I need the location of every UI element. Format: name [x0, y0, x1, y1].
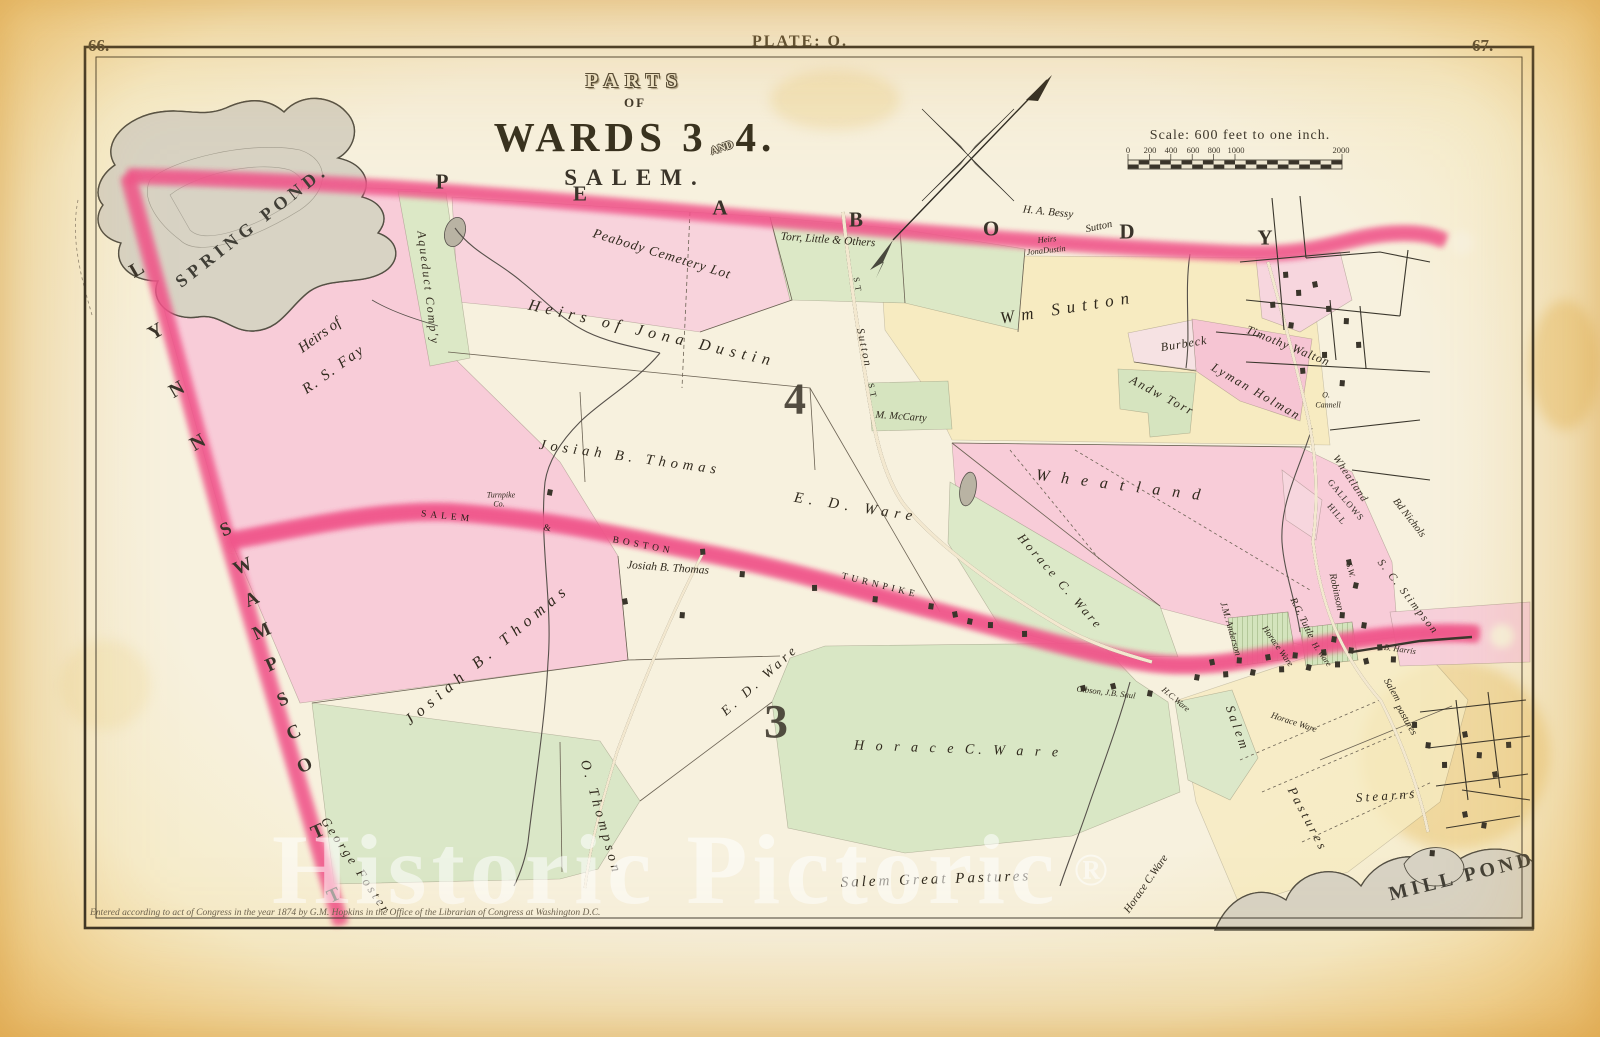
title-and-ornament: AND: [708, 139, 734, 158]
map-label: Gibson, J.B. Saul: [1076, 683, 1136, 700]
map-label: Turnpike: [487, 491, 515, 500]
map-label: H o r a c e C. W a r e: [854, 738, 1063, 761]
map-label: N: [165, 376, 189, 403]
map-label: Horace C. Ware: [1014, 531, 1106, 633]
map-label: Heirs of: [295, 315, 344, 357]
page-number-right: 67.: [1472, 36, 1493, 56]
map-label: D: [1119, 220, 1134, 245]
map-label: O: [294, 753, 316, 779]
map-label: BOSTON: [612, 535, 675, 557]
map-label: 3: [764, 695, 788, 750]
map-label: Lyman Holman: [1208, 360, 1303, 424]
map-label: B. Harris: [1383, 642, 1416, 656]
map-label: Horace Ware: [1270, 710, 1318, 734]
map-label: R.G. Tuttle: [1287, 596, 1316, 640]
scale-caption: Scale: 600 feet to one inch.: [1120, 128, 1360, 144]
map-label: S.W.: [1344, 562, 1357, 579]
map-label: P: [262, 653, 282, 678]
map-label: B: [849, 208, 863, 233]
map-label: 800: [1208, 145, 1221, 155]
map-label: Robinson: [1327, 572, 1346, 611]
map-label: W h e a t l a n d: [1035, 467, 1205, 506]
map-label: Aqueduct Comp'y: [414, 230, 443, 346]
map-label: pastures: [1393, 703, 1419, 738]
map-label: SALEM: [421, 509, 474, 524]
map-label: Salem Great Pastures: [840, 868, 1031, 892]
plate-label: PLATE: O.: [0, 33, 1600, 51]
map-label: O: [983, 217, 999, 242]
title-of: OF: [455, 95, 815, 111]
map-label: Salem: [1381, 677, 1403, 704]
map-label: Torr, Little & Others: [780, 231, 875, 250]
map-label: Horace C.Ware: [1122, 853, 1171, 916]
map-label: S: [274, 688, 293, 712]
map-label: O.: [1322, 391, 1330, 400]
map-label: Y: [1257, 226, 1272, 251]
map-label: Bd Nichols: [1390, 496, 1427, 539]
copyright-line: Entered according to act of Congress in …: [90, 908, 600, 918]
map-label: Burbeck: [1160, 333, 1209, 355]
map-label: Josiah B. Thomas: [538, 437, 722, 479]
map-label: Andw Torr: [1127, 373, 1197, 420]
map-label: H. Ware: [1310, 640, 1334, 668]
map-label: S: [217, 518, 236, 542]
map-label: Y: [144, 318, 168, 345]
map-label: S. C. Stimpson: [1375, 557, 1441, 637]
map-label: ST: [866, 382, 880, 402]
map-label: P: [436, 170, 449, 195]
map-label: Peabody Cemetery Lot: [591, 225, 733, 282]
map-label: Sutton: [854, 327, 874, 369]
map-label: 2000: [1333, 145, 1350, 155]
map-label: Cannell: [1315, 401, 1340, 410]
map-label: 200: [1144, 145, 1157, 155]
map-label: 600: [1187, 145, 1200, 155]
map-label: T: [324, 883, 345, 908]
map-label: ST: [852, 276, 865, 295]
map-label: Heirs of Jona Dustin: [526, 297, 777, 372]
map-label: Josiah B. Thomas: [402, 581, 575, 730]
title-city: SALEM.: [455, 165, 815, 191]
map-label: H.C.Ware: [1160, 684, 1192, 713]
map-label: &: [543, 523, 556, 534]
map-label: SPRING POND.: [171, 160, 332, 292]
map-label: Wm Sutton: [999, 287, 1138, 328]
map-label: J.M. Anderson: [1218, 601, 1243, 657]
map-label: George Foster: [317, 814, 394, 918]
title-parts: PARTS: [455, 70, 815, 93]
map-label: 4: [784, 374, 806, 425]
map-label: Josiah B. Thomas: [627, 559, 710, 577]
map-label: L: [125, 257, 148, 284]
map-label: P a s t u r e s: [1284, 784, 1330, 852]
map-label: S t e a r n s: [1355, 786, 1414, 806]
map-label: Timothy Walton: [1244, 322, 1332, 369]
map-label: A: [241, 587, 262, 613]
map-label: 0: [1126, 145, 1130, 155]
map-label: Co.: [493, 500, 504, 509]
map-label: E. D. Ware: [718, 641, 802, 719]
map-label: 400: [1165, 145, 1178, 155]
map-label: C: [283, 720, 304, 746]
map-label: H. A. Bessy: [1022, 203, 1073, 220]
map-label: W: [230, 553, 256, 581]
map-label: Sutton: [1085, 219, 1114, 235]
map-label: N: [186, 429, 210, 456]
atlas-sheet: 66. PLATE: O. 67.: [0, 0, 1600, 1037]
map-label: S a l e m: [1222, 703, 1252, 751]
map-label: A: [712, 196, 727, 221]
map-label: M. McCarty: [875, 410, 927, 425]
title-main: WARDS 3AND4.: [455, 113, 815, 161]
map-label: E. D. Ware: [793, 490, 920, 526]
map-label: JonaDustin: [1026, 243, 1066, 257]
map-label: 1000: [1228, 145, 1245, 155]
map-label: MILL POND: [1386, 848, 1537, 907]
map-label: Horace Ware: [1260, 624, 1295, 669]
map-label: O. Thompson: [576, 758, 624, 877]
map-label: M: [249, 618, 274, 645]
title-block: PARTS OF WARDS 3AND4. SALEM.: [455, 70, 815, 191]
map-label: TURNPIKE: [840, 572, 919, 601]
